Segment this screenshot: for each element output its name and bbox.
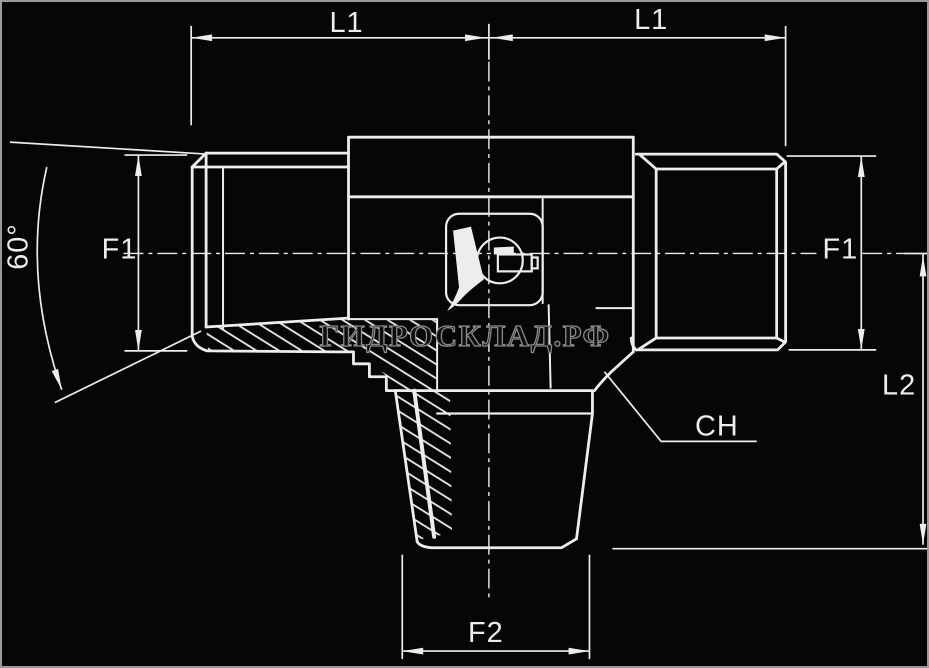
cone-ext-lower xyxy=(55,331,201,403)
label-ch: CH xyxy=(695,410,739,442)
right-shoulder-slant xyxy=(594,352,633,391)
body-top-cap xyxy=(349,137,634,197)
arrow-l1-right xyxy=(765,34,786,41)
arrow-l1-left xyxy=(191,34,212,41)
logo-wedge xyxy=(447,227,484,311)
brand-logo xyxy=(446,214,543,311)
arrow-f1-left-up xyxy=(135,155,142,176)
arrow-l2-down xyxy=(920,524,927,545)
bottom-thread-hatch xyxy=(396,392,452,540)
arrow-f1-right-down xyxy=(858,329,865,350)
arrow-l1-center-b xyxy=(492,34,513,41)
label-cone-angle: 60° xyxy=(3,223,35,270)
label-l2: L2 xyxy=(882,370,916,402)
right-port xyxy=(631,154,785,350)
logo-glyph-top xyxy=(494,247,514,255)
cone-angle-arc xyxy=(37,167,62,390)
watermark-text: ГИДРОСКЛАД.РФ xyxy=(319,319,610,353)
label-l1-left: L1 xyxy=(329,7,363,39)
arrow-f2-left xyxy=(402,648,423,655)
logo-circle xyxy=(477,238,523,284)
label-f2: F2 xyxy=(468,617,504,649)
right-corner-tl xyxy=(640,155,656,169)
cone-ext-upper xyxy=(10,142,206,154)
label-f1-left: F1 xyxy=(102,233,138,265)
right-corner-tr xyxy=(777,162,785,169)
arrow-f1-left-down xyxy=(135,330,142,351)
arrow-cone-arc xyxy=(52,369,62,390)
arrow-f1-right-up xyxy=(858,156,865,177)
tee-fitting-diagram: ГИДРОСКЛАД.РФ L1 L1 F1 F1 L2 F2 CH 60° xyxy=(2,2,927,666)
logo-glyph-box xyxy=(498,254,532,271)
right-corner-bl xyxy=(639,338,656,349)
bottom-tip-edge xyxy=(417,539,576,548)
arrow-f2-right xyxy=(569,648,590,655)
label-f1-right: F1 xyxy=(823,233,859,265)
arrow-l2-up xyxy=(920,255,927,276)
drawing-canvas: ГИДРОСКЛАД.РФ L1 L1 F1 F1 L2 F2 CH 60° xyxy=(0,0,929,668)
right-silhouette xyxy=(636,154,785,350)
left-tip-top-chamfer xyxy=(192,153,206,167)
arrow-l1-center-a xyxy=(465,34,486,41)
logo-glyph-tab xyxy=(532,257,538,268)
label-l1-right: L1 xyxy=(634,4,668,36)
right-corner-br xyxy=(777,338,785,342)
